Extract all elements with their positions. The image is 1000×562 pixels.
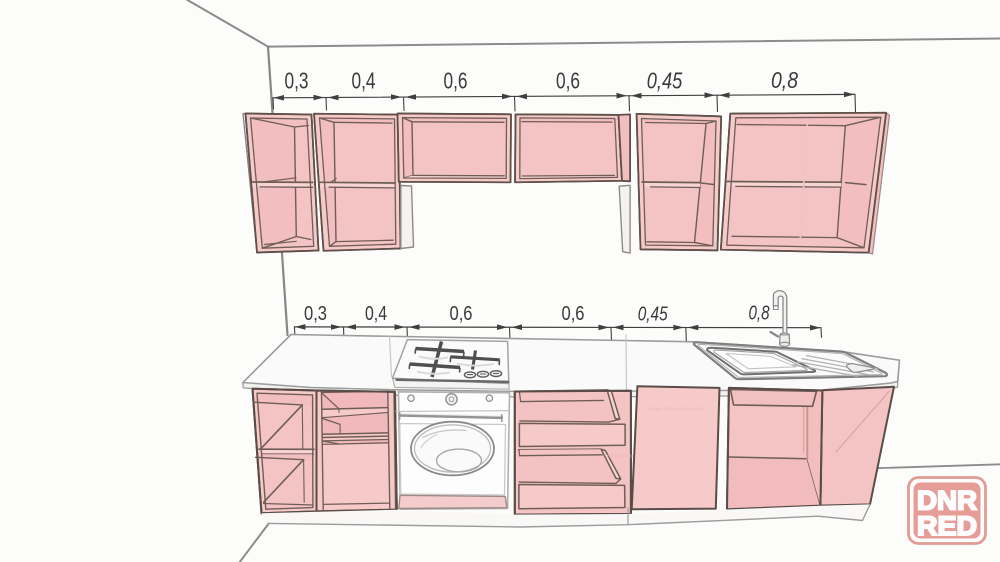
svg-text:0,6: 0,6 — [444, 68, 468, 94]
svg-text:0,6: 0,6 — [556, 68, 580, 94]
svg-text:0,3: 0,3 — [285, 68, 309, 94]
svg-text:RED: RED — [917, 511, 977, 541]
svg-text:0,6: 0,6 — [562, 302, 585, 325]
svg-text:0,45: 0,45 — [647, 68, 683, 94]
svg-text:0,8: 0,8 — [771, 67, 798, 93]
svg-text:нарисованная кухня: нарисованная кухня — [647, 407, 705, 413]
svg-text:0,6: 0,6 — [450, 302, 473, 325]
svg-text:0,45: 0,45 — [638, 303, 668, 326]
svg-text:0,3: 0,3 — [304, 302, 327, 325]
svg-text:0,4: 0,4 — [352, 68, 376, 94]
svg-text:0,8: 0,8 — [749, 302, 770, 325]
svg-text:0,4: 0,4 — [365, 302, 387, 325]
